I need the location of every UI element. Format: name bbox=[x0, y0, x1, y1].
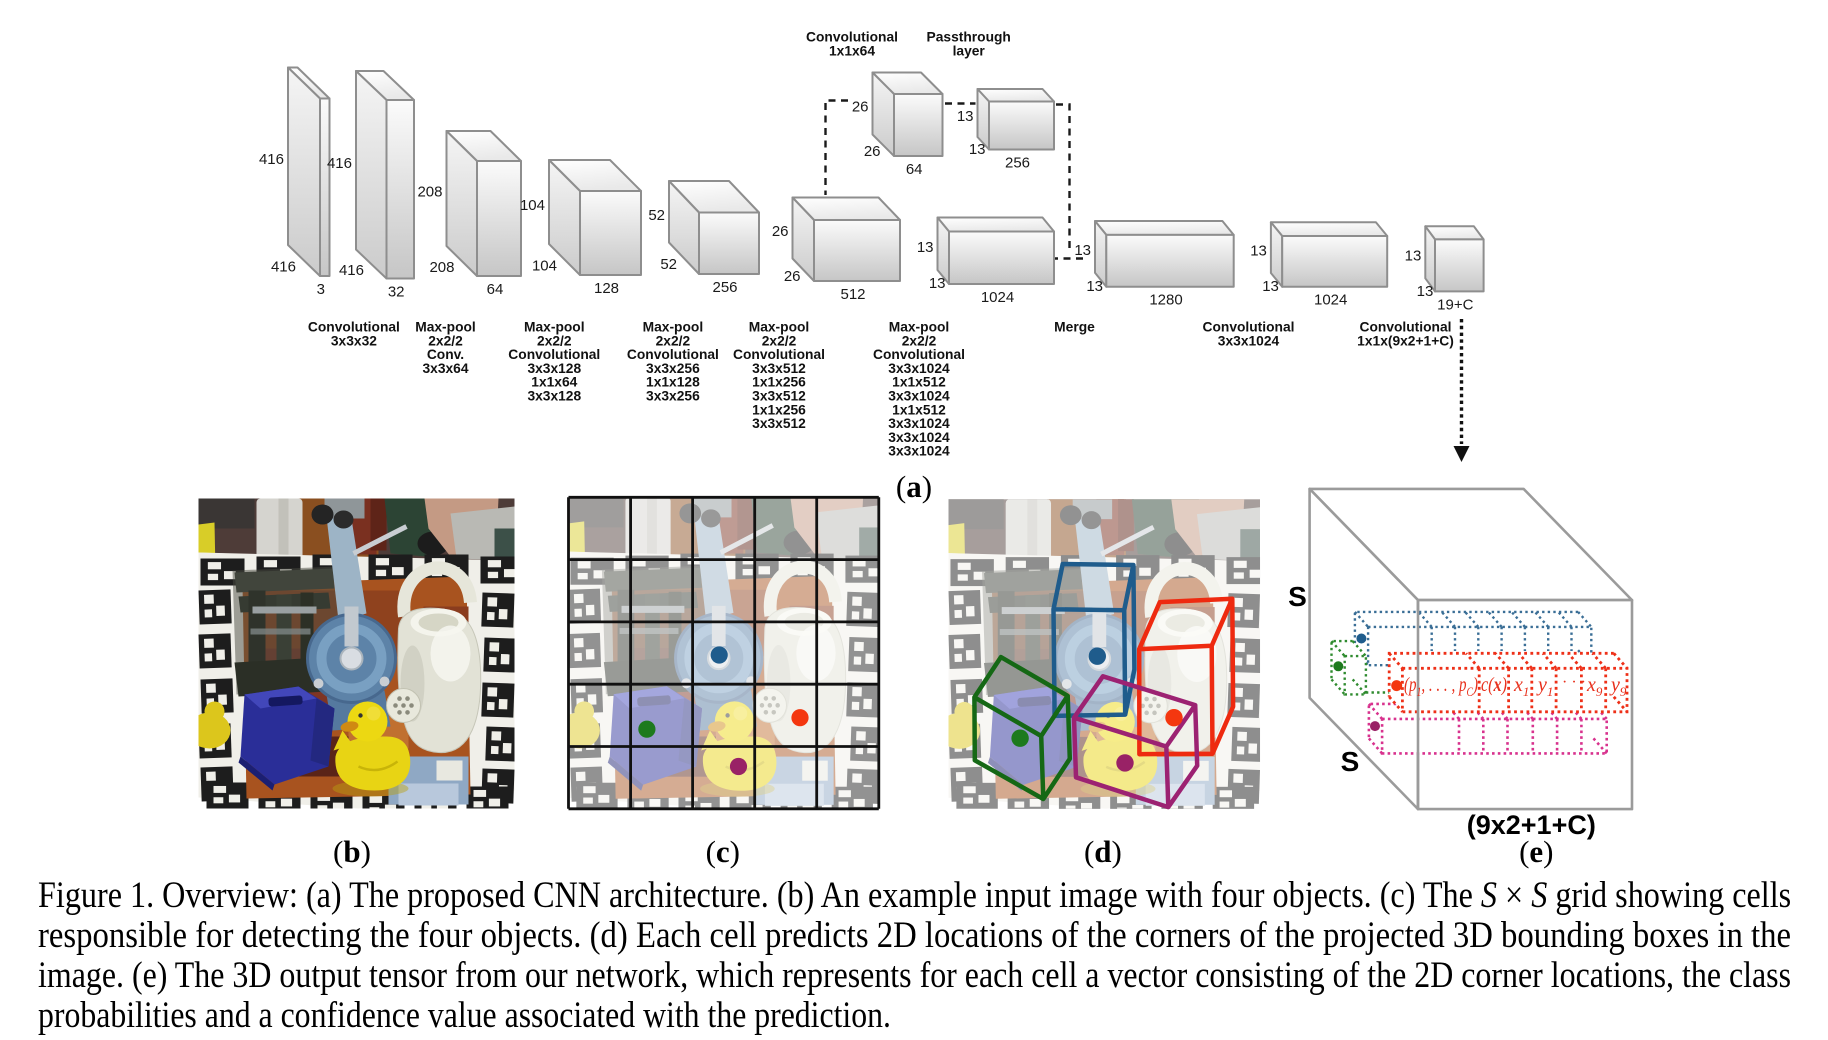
svg-text:1x1x(9x2+1+C): 1x1x(9x2+1+C) bbox=[1357, 333, 1454, 348]
svg-text:416: 416 bbox=[271, 259, 296, 276]
svg-text:13: 13 bbox=[1417, 283, 1434, 300]
svg-text:· · ·: · · · bbox=[1562, 674, 1586, 691]
svg-text:Convolutional: Convolutional bbox=[308, 320, 400, 335]
svg-text:32: 32 bbox=[388, 284, 405, 301]
svg-text:Convolutional: Convolutional bbox=[806, 30, 898, 45]
svg-text:3x3x64: 3x3x64 bbox=[422, 361, 468, 376]
svg-text:52: 52 bbox=[660, 256, 677, 273]
svg-text:1x1x64: 1x1x64 bbox=[531, 375, 577, 390]
svg-text:2x2/2: 2x2/2 bbox=[428, 333, 463, 348]
svg-text:416: 416 bbox=[259, 151, 284, 168]
svg-text:26: 26 bbox=[852, 99, 869, 116]
svg-text:layer: layer bbox=[953, 43, 986, 58]
svg-text:13: 13 bbox=[1250, 243, 1267, 260]
svg-text:64: 64 bbox=[487, 281, 504, 298]
svg-text:512: 512 bbox=[840, 286, 865, 303]
svg-text:1280: 1280 bbox=[1149, 292, 1182, 309]
svg-text:3x3x128: 3x3x128 bbox=[527, 389, 581, 404]
svg-text:S: S bbox=[1288, 581, 1307, 612]
svg-text:3x3x1024: 3x3x1024 bbox=[888, 389, 950, 404]
svg-text:3x3x1024: 3x3x1024 bbox=[888, 361, 950, 376]
svg-text:256: 256 bbox=[712, 279, 737, 296]
svg-text:208: 208 bbox=[417, 184, 442, 201]
svg-text:(a): (a) bbox=[896, 469, 932, 504]
svg-text:Convolutional: Convolutional bbox=[873, 347, 965, 362]
svg-text:1x1x256: 1x1x256 bbox=[752, 375, 806, 390]
svg-text:416: 416 bbox=[327, 155, 352, 172]
svg-text:Convolutional: Convolutional bbox=[733, 347, 825, 362]
svg-text:1024: 1024 bbox=[981, 289, 1014, 306]
svg-text:13: 13 bbox=[1086, 278, 1103, 295]
svg-text:Max-pool: Max-pool bbox=[643, 320, 704, 335]
svg-text:3x3x256: 3x3x256 bbox=[646, 361, 700, 376]
svg-text:Max-pool: Max-pool bbox=[415, 320, 476, 335]
svg-text:Conv.: Conv. bbox=[427, 347, 464, 362]
svg-text:Max-pool: Max-pool bbox=[749, 320, 810, 335]
svg-text:52: 52 bbox=[648, 207, 665, 224]
svg-text:2x2/2: 2x2/2 bbox=[537, 333, 572, 348]
svg-text:13: 13 bbox=[1405, 247, 1422, 264]
svg-text:1x1x64: 1x1x64 bbox=[829, 43, 875, 58]
svg-text:13: 13 bbox=[1074, 242, 1091, 259]
svg-text:S: S bbox=[1341, 746, 1360, 777]
svg-text:3x3x256: 3x3x256 bbox=[646, 389, 700, 404]
svg-text:19+C: 19+C bbox=[1437, 296, 1473, 313]
svg-text:1x1x512: 1x1x512 bbox=[892, 375, 946, 390]
svg-text:13: 13 bbox=[1262, 278, 1279, 295]
svg-text:104: 104 bbox=[532, 258, 557, 275]
svg-text:(b): (b) bbox=[333, 834, 371, 869]
svg-text:Passthrough: Passthrough bbox=[927, 30, 1011, 45]
svg-text:26: 26 bbox=[864, 143, 881, 160]
svg-text:2x2/2: 2x2/2 bbox=[762, 333, 797, 348]
svg-text:208: 208 bbox=[429, 259, 454, 276]
svg-text:3x3x128: 3x3x128 bbox=[527, 361, 581, 376]
svg-text:3x3x512: 3x3x512 bbox=[752, 361, 806, 376]
svg-text:13: 13 bbox=[957, 108, 974, 125]
svg-text:26: 26 bbox=[784, 268, 801, 285]
svg-text:Convolutional: Convolutional bbox=[627, 347, 719, 362]
svg-text:Merge: Merge bbox=[1054, 320, 1095, 335]
svg-text:Convolutional: Convolutional bbox=[1203, 320, 1295, 335]
svg-text:2x2/2: 2x2/2 bbox=[656, 333, 691, 348]
svg-text:13: 13 bbox=[917, 239, 934, 256]
svg-text:(e): (e) bbox=[1519, 834, 1553, 869]
svg-text:2x2/2: 2x2/2 bbox=[902, 333, 937, 348]
svg-text:3x3x512: 3x3x512 bbox=[752, 389, 806, 404]
svg-text:c(x): c(x) bbox=[1481, 674, 1507, 696]
svg-text:1x1x512: 1x1x512 bbox=[892, 402, 946, 417]
svg-text:3x3x1024: 3x3x1024 bbox=[888, 430, 950, 445]
svg-text:Convolutional: Convolutional bbox=[1360, 320, 1452, 335]
svg-text:Convolutional: Convolutional bbox=[508, 347, 600, 362]
svg-text:104: 104 bbox=[520, 197, 545, 214]
svg-text:256: 256 bbox=[1005, 155, 1030, 172]
svg-text:3: 3 bbox=[317, 281, 325, 298]
svg-text:1x1x256: 1x1x256 bbox=[752, 402, 806, 417]
svg-text:3x3x32: 3x3x32 bbox=[331, 333, 377, 348]
svg-text:3x3x512: 3x3x512 bbox=[752, 416, 806, 431]
svg-text:1x1x128: 1x1x128 bbox=[646, 375, 700, 390]
svg-text:3x3x1024: 3x3x1024 bbox=[1218, 333, 1280, 348]
svg-text:Max-pool: Max-pool bbox=[889, 320, 950, 335]
svg-text:3x3x1024: 3x3x1024 bbox=[888, 444, 950, 459]
svg-text:416: 416 bbox=[339, 262, 364, 279]
svg-text:13: 13 bbox=[969, 141, 986, 158]
svg-text:3x3x1024: 3x3x1024 bbox=[888, 416, 950, 431]
svg-text:128: 128 bbox=[594, 280, 619, 297]
svg-text:(d): (d) bbox=[1084, 834, 1122, 869]
svg-text:(c): (c) bbox=[706, 834, 740, 869]
svg-text:26: 26 bbox=[772, 223, 789, 240]
svg-text:Max-pool: Max-pool bbox=[524, 320, 585, 335]
svg-text:13: 13 bbox=[929, 275, 946, 292]
svg-text:64: 64 bbox=[906, 161, 923, 178]
svg-text:1024: 1024 bbox=[1314, 292, 1347, 309]
